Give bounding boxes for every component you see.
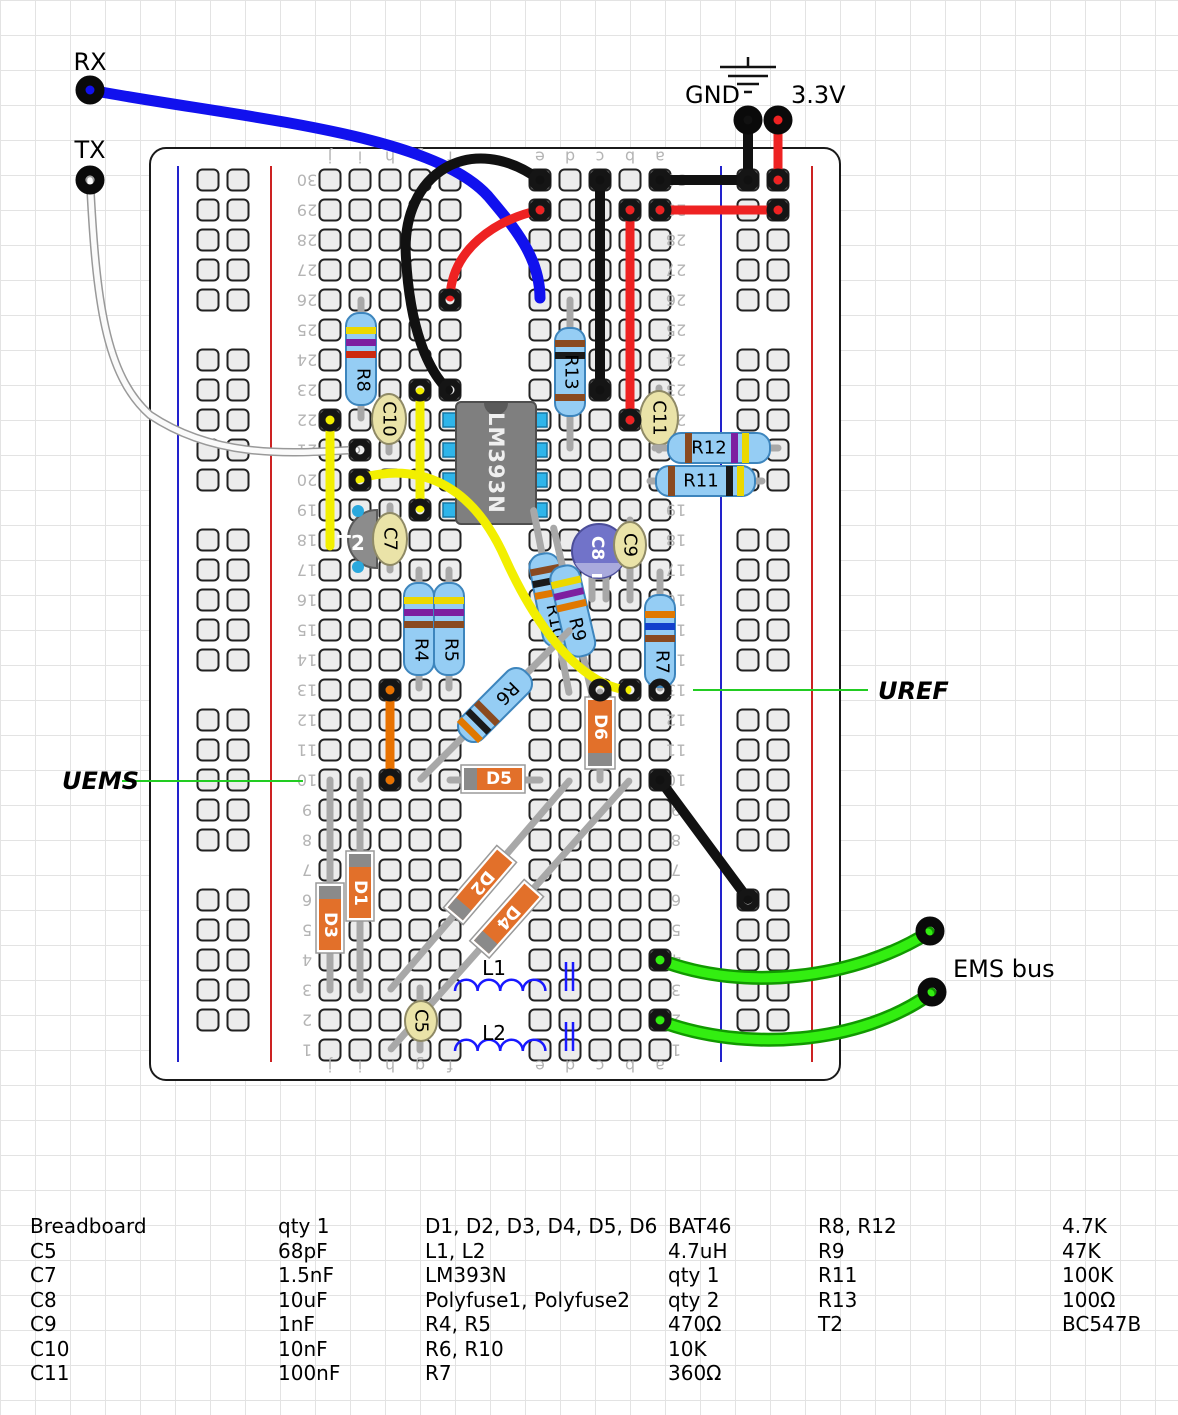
rail-hole[interactable] (228, 890, 249, 911)
breadboard-hole[interactable] (530, 320, 551, 341)
rail-hole[interactable] (228, 800, 249, 821)
breadboard-hole[interactable] (560, 710, 581, 731)
breadboard-hole[interactable] (350, 260, 371, 281)
rail-hole[interactable] (228, 380, 249, 401)
breadboard-hole[interactable] (320, 560, 341, 581)
breadboard-hole[interactable] (320, 230, 341, 251)
label-r8: R8 (353, 368, 374, 392)
column-letter: i (358, 1057, 362, 1076)
breadboard-hole[interactable] (590, 650, 611, 671)
breadboard-hole[interactable] (380, 920, 401, 941)
label-d5: D5 (486, 769, 512, 789)
rail-hole[interactable] (768, 890, 789, 911)
part-name: C11 (30, 1361, 278, 1386)
breadboard-hole[interactable] (590, 950, 611, 971)
part-row: R6, R1010K (425, 1337, 732, 1362)
breadboard-hole[interactable] (560, 500, 581, 521)
breadboard-hole[interactable] (440, 830, 461, 851)
rail-hole[interactable] (198, 890, 219, 911)
breadboard-hole[interactable] (590, 980, 611, 1001)
breadboard-hole[interactable] (440, 230, 461, 251)
resistor-r8[interactable]: R8 (346, 300, 376, 418)
breadboard-hole[interactable] (410, 800, 431, 821)
breadboard-hole[interactable] (620, 890, 641, 911)
breadboard-hole[interactable] (620, 980, 641, 1001)
row-number: 2 (302, 1011, 312, 1030)
rail-hole[interactable] (228, 980, 249, 1001)
rail-hole[interactable] (768, 470, 789, 491)
rail-hole[interactable] (228, 920, 249, 941)
part-value: qty 1 (278, 1214, 329, 1238)
rail-hole[interactable] (768, 770, 789, 791)
part-name: T2 (818, 1312, 1062, 1337)
part-row: LM393Nqty 1 (425, 1263, 732, 1288)
breadboard-hole[interactable] (650, 800, 671, 821)
breadboard-hole[interactable] (380, 260, 401, 281)
breadboard-hole[interactable] (530, 1010, 551, 1031)
rail-hole[interactable] (198, 200, 219, 221)
breadboard-hole[interactable] (440, 800, 461, 821)
rail-hole[interactable] (228, 410, 249, 431)
breadboard-hole[interactable] (560, 800, 581, 821)
rail-hole[interactable] (228, 230, 249, 251)
row-number: 26 (666, 291, 686, 310)
label-tx: TX (73, 136, 105, 164)
row-number: 24 (297, 351, 317, 370)
rail-hole[interactable] (768, 740, 789, 761)
breadboard-hole[interactable] (590, 440, 611, 461)
part-row: C1010nF (30, 1337, 340, 1362)
rail-hole[interactable] (738, 710, 759, 731)
part-value: 1nF (278, 1312, 315, 1336)
rail-hole[interactable] (738, 770, 759, 791)
rail-hole[interactable] (738, 260, 759, 281)
breadboard-hole[interactable] (380, 830, 401, 851)
breadboard-hole[interactable] (560, 200, 581, 221)
row-number: 8 (302, 831, 312, 850)
breadboard-hole[interactable] (620, 830, 641, 851)
row-number: 29 (297, 201, 317, 220)
rail-hole[interactable] (228, 170, 249, 191)
rail-hole[interactable] (738, 620, 759, 641)
rail-hole[interactable] (738, 290, 759, 311)
breadboard-hole[interactable] (380, 950, 401, 971)
rail-hole[interactable] (228, 620, 249, 641)
breadboard-hole[interactable] (410, 740, 431, 761)
t2-pin (352, 561, 364, 573)
rail-hole[interactable] (198, 560, 219, 581)
row-number: 22 (297, 411, 317, 430)
rail-hole[interactable] (198, 260, 219, 281)
column-letter: b (625, 1057, 635, 1076)
breadboard-hole[interactable] (440, 950, 461, 971)
label-c8: C8 (587, 536, 607, 560)
breadboard-hole[interactable] (350, 710, 371, 731)
rail-hole[interactable] (198, 980, 219, 1001)
rail-hole[interactable] (768, 230, 789, 251)
breadboard-hole[interactable] (650, 920, 671, 941)
rail-hole[interactable] (198, 830, 219, 851)
breadboard-hole[interactable] (530, 710, 551, 731)
rail-hole[interactable] (228, 740, 249, 761)
breadboard-hole[interactable] (560, 230, 581, 251)
breadboard-hole[interactable] (410, 860, 431, 881)
rail-hole[interactable] (768, 590, 789, 611)
rail-hole[interactable] (768, 830, 789, 851)
rail-hole[interactable] (228, 710, 249, 731)
part-row: R7360Ω (425, 1361, 732, 1386)
breadboard-hole[interactable] (320, 290, 341, 311)
column-letter: d (565, 1057, 575, 1076)
breadboard-hole[interactable] (350, 170, 371, 191)
breadboard-hole[interactable] (350, 680, 371, 701)
part-value: qty 2 (668, 1288, 719, 1312)
breadboard-hole[interactable] (410, 230, 431, 251)
breadboard-hole[interactable] (380, 320, 401, 341)
row-number: 3 (671, 981, 681, 1000)
column-letter: f (447, 1057, 453, 1076)
breadboard-hole[interactable] (440, 320, 461, 341)
rail-hole[interactable] (198, 380, 219, 401)
row-number: 9 (302, 801, 312, 820)
rail-hole[interactable] (738, 410, 759, 431)
breadboard-hole[interactable] (320, 170, 341, 191)
rail-hole[interactable] (738, 590, 759, 611)
rail-hole[interactable] (198, 800, 219, 821)
breadboard-hole[interactable] (530, 920, 551, 941)
breadboard-hole[interactable] (530, 950, 551, 971)
part-value: 10K (668, 1337, 707, 1361)
breadboard-hole[interactable] (560, 740, 581, 761)
rail-hole[interactable] (198, 920, 219, 941)
breadboard-hole[interactable] (320, 680, 341, 701)
row-number: 23 (297, 381, 317, 400)
row-number: 14 (297, 651, 317, 670)
breadboard-hole[interactable] (620, 860, 641, 881)
label-r5: R5 (441, 638, 462, 662)
rail-hole[interactable] (738, 530, 759, 551)
rail-hole[interactable] (768, 800, 789, 821)
page: 1122334455667788991010111112121313141415… (0, 0, 1178, 1415)
part-value: 470Ω (668, 1312, 721, 1336)
breadboard-hole[interactable] (560, 890, 581, 911)
label-r13: R13 (561, 354, 582, 389)
label-gnd: GND (685, 81, 740, 109)
breadboard-hole[interactable] (620, 740, 641, 761)
breadboard-hole[interactable] (380, 860, 401, 881)
rail-hole[interactable] (738, 350, 759, 371)
rail-hole[interactable] (198, 470, 219, 491)
part-name: R8, R12 (818, 1214, 1062, 1239)
breadboard-hole[interactable] (380, 800, 401, 821)
rail-hole[interactable] (228, 590, 249, 611)
label-ems-bus: EMS bus (953, 955, 1055, 983)
breadboard-hole[interactable] (530, 740, 551, 761)
rail-hole[interactable] (228, 200, 249, 221)
row-number: 5 (671, 921, 681, 940)
breadboard-hole[interactable] (590, 920, 611, 941)
breadboard-hole[interactable] (620, 170, 641, 191)
breadboard-hole[interactable] (590, 410, 611, 431)
rail-hole[interactable] (768, 650, 789, 671)
breadboard-hole[interactable] (380, 350, 401, 371)
breadboard-hole[interactable] (410, 920, 431, 941)
label-uref: UREF (878, 677, 949, 705)
breadboard-hole[interactable] (620, 1010, 641, 1031)
rail-hole[interactable] (228, 260, 249, 281)
breadboard-hole[interactable] (320, 710, 341, 731)
part-value: 10nF (278, 1337, 328, 1361)
column-letter: a (655, 148, 665, 167)
breadboard-hole[interactable] (590, 1010, 611, 1031)
breadboard-hole[interactable] (320, 260, 341, 281)
rail-hole[interactable] (738, 230, 759, 251)
row-number: 8 (671, 831, 681, 850)
breadboard-hole[interactable] (530, 830, 551, 851)
rail-hole[interactable] (228, 830, 249, 851)
rail-hole[interactable] (198, 530, 219, 551)
resistor-r12[interactable]: R12 (655, 433, 778, 463)
breadboard-hole[interactable] (380, 590, 401, 611)
breadboard-hole[interactable] (380, 290, 401, 311)
rail-hole[interactable] (768, 560, 789, 581)
rail-hole[interactable] (198, 350, 219, 371)
part-name: C7 (30, 1263, 278, 1288)
breadboard-hole[interactable] (320, 650, 341, 671)
rail-hole[interactable] (198, 230, 219, 251)
part-value: BC547B (1062, 1312, 1141, 1336)
breadboard-hole[interactable] (410, 890, 431, 911)
row-number: 16 (297, 591, 317, 610)
breadboard-hole[interactable] (320, 380, 341, 401)
breadboard-hole[interactable] (380, 620, 401, 641)
breadboard-hole[interactable] (320, 320, 341, 341)
breadboard-hole[interactable] (560, 260, 581, 281)
breadboard-hole[interactable] (380, 1010, 401, 1031)
breadboard-hole[interactable] (350, 590, 371, 611)
row-number: 28 (297, 231, 317, 250)
row-number: 6 (671, 891, 681, 910)
part-value: 4.7uH (668, 1239, 728, 1263)
parts-list-group-2: D1, D2, D3, D4, D5, D6BAT46L1, L24.7uHLM… (425, 1214, 732, 1386)
breadboard-hole[interactable] (350, 650, 371, 671)
rail-hole[interactable] (228, 650, 249, 671)
rail-hole[interactable] (768, 920, 789, 941)
part-name: R13 (818, 1288, 1062, 1313)
rail-hole[interactable] (768, 1010, 789, 1031)
breadboard-hole[interactable] (530, 350, 551, 371)
part-name: L1, L2 (425, 1239, 668, 1264)
breadboard-hole[interactable] (560, 1010, 581, 1031)
breadboard-hole[interactable] (650, 860, 671, 881)
rail-hole[interactable] (768, 260, 789, 281)
rail-hole[interactable] (738, 650, 759, 671)
rail-hole[interactable] (738, 560, 759, 581)
row-number: 28 (666, 231, 686, 250)
breadboard-hole[interactable] (410, 710, 431, 731)
rail-hole[interactable] (228, 1010, 249, 1031)
part-row: R8, R124.7K (818, 1214, 1141, 1239)
breadboard-hole[interactable] (650, 830, 671, 851)
rail-hole[interactable] (768, 620, 789, 641)
label-d1: D1 (350, 880, 370, 906)
column-letter: i (358, 148, 362, 167)
rail-hole[interactable] (198, 740, 219, 761)
breadboard-hole[interactable] (590, 470, 611, 491)
row-number: 27 (297, 261, 317, 280)
breadboard-hole[interactable] (380, 200, 401, 221)
row-number: 7 (302, 861, 312, 880)
row-number: 11 (666, 741, 686, 760)
breadboard-hole[interactable] (650, 890, 671, 911)
rail-hole[interactable] (768, 290, 789, 311)
rail-hole[interactable] (228, 560, 249, 581)
rail-hole[interactable] (198, 710, 219, 731)
rail-hole[interactable] (198, 1010, 219, 1031)
breadboard-hole[interactable] (440, 530, 461, 551)
breadboard-hole[interactable] (530, 230, 551, 251)
label-l2: L2 (482, 1021, 506, 1045)
breadboard-hole[interactable] (620, 800, 641, 821)
breadboard-hole[interactable] (620, 650, 641, 671)
breadboard-hole[interactable] (560, 860, 581, 881)
rail-hole[interactable] (228, 470, 249, 491)
rail-hole[interactable] (768, 410, 789, 431)
rail-hole[interactable] (768, 950, 789, 971)
breadboard-hole[interactable] (560, 170, 581, 191)
breadboard-hole[interactable] (590, 830, 611, 851)
column-letter: j (328, 1057, 333, 1076)
rail-hole[interactable] (198, 590, 219, 611)
breadboard-hole[interactable] (350, 740, 371, 761)
part-row: C810uF (30, 1288, 340, 1313)
rail-hole[interactable] (228, 950, 249, 971)
breadboard-hole[interactable] (530, 380, 551, 401)
row-number: 19 (666, 501, 686, 520)
diode-d6[interactable]: D6 (585, 692, 615, 780)
rail-hole[interactable] (228, 290, 249, 311)
rail-hole[interactable] (198, 290, 219, 311)
breadboard-hole[interactable] (620, 710, 641, 731)
breadboard-hole[interactable] (320, 350, 341, 371)
breadboard-hole[interactable] (620, 620, 641, 641)
part-name: C5 (30, 1239, 278, 1264)
breadboard-hole[interactable] (410, 260, 431, 281)
rail-hole[interactable] (768, 380, 789, 401)
rail-hole[interactable] (738, 800, 759, 821)
part-value: qty 1 (668, 1263, 719, 1287)
label-r4: R4 (411, 638, 432, 662)
column-letter: h (385, 1057, 395, 1076)
label-d3: D3 (320, 912, 340, 938)
rail-hole[interactable] (768, 530, 789, 551)
rail-hole[interactable] (738, 920, 759, 941)
breadboard-hole[interactable] (440, 1010, 461, 1031)
breadboard-hole[interactable] (560, 920, 581, 941)
label-c5: C5 (411, 1009, 432, 1033)
part-row: L1, L24.7uH (425, 1239, 732, 1264)
breadboard-hole[interactable] (440, 200, 461, 221)
rail-hole[interactable] (738, 1010, 759, 1031)
rail-hole[interactable] (198, 650, 219, 671)
breadboard-hole[interactable] (650, 980, 671, 1001)
breadboard-hole[interactable] (320, 740, 341, 761)
row-number: 13 (297, 681, 317, 700)
rail-hole[interactable] (768, 350, 789, 371)
column-letter: e (535, 1057, 545, 1076)
rail-hole[interactable] (768, 710, 789, 731)
part-name: LM393N (425, 1263, 668, 1288)
breadboard-hole[interactable] (410, 830, 431, 851)
column-letter: b (625, 148, 635, 167)
row-number: 18 (297, 531, 317, 550)
breadboard-hole[interactable] (590, 500, 611, 521)
breadboard-hole[interactable] (410, 530, 431, 551)
breadboard-hole[interactable] (380, 890, 401, 911)
part-row: Polyfuse1, Polyfuse2qty 2 (425, 1288, 732, 1313)
breadboard-hole[interactable] (620, 440, 641, 461)
row-number: 26 (297, 291, 317, 310)
breadboard-hole[interactable] (380, 170, 401, 191)
breadboard-hole[interactable] (380, 230, 401, 251)
breadboard-hole[interactable] (320, 200, 341, 221)
breadboard-hole[interactable] (560, 950, 581, 971)
row-number: 30 (297, 171, 317, 190)
breadboard-hole[interactable] (350, 1010, 371, 1031)
rail-hole[interactable] (738, 380, 759, 401)
label-l1: L1 (482, 956, 506, 980)
rail-hole[interactable] (228, 530, 249, 551)
breadboard-hole[interactable] (590, 860, 611, 881)
breadboard-hole[interactable] (440, 860, 461, 881)
breadboard-hole[interactable] (440, 350, 461, 371)
breadboard-hole[interactable] (620, 920, 641, 941)
breadboard-hole[interactable] (590, 890, 611, 911)
resistor-r11[interactable]: R11 (650, 466, 762, 496)
breadboard-hole[interactable] (320, 590, 341, 611)
rail-hole[interactable] (738, 830, 759, 851)
label-lm393n: LM393N (484, 412, 508, 514)
rail-hole[interactable] (198, 620, 219, 641)
rail-hole[interactable] (738, 740, 759, 761)
resistor-r5[interactable]: R5 (434, 570, 464, 688)
breadboard-hole[interactable] (560, 470, 581, 491)
part-value: 4.7K (1062, 1214, 1107, 1238)
resistor-r4[interactable]: R4 (404, 570, 434, 688)
label-c9: C9 (620, 533, 641, 557)
rail-hole[interactable] (198, 950, 219, 971)
breadboard-hole[interactable] (350, 620, 371, 641)
breadboard-hole[interactable] (380, 650, 401, 671)
ic-lm393n[interactable]: LM393N (443, 402, 547, 524)
breadboard-hole[interactable] (350, 230, 371, 251)
label-rx: RX (73, 48, 106, 76)
rail-hole[interactable] (198, 410, 219, 431)
breadboard-hole[interactable] (620, 470, 641, 491)
breadboard-hole[interactable] (320, 620, 341, 641)
row-number: 7 (671, 861, 681, 880)
row-number: 17 (297, 561, 317, 580)
breadboard-hole[interactable] (560, 980, 581, 1001)
rail-hole[interactable] (228, 350, 249, 371)
rail-hole[interactable] (198, 170, 219, 191)
breadboard-hole[interactable] (320, 1010, 341, 1031)
part-value: 47K (1062, 1239, 1101, 1263)
part-row: Breadboardqty 1 (30, 1214, 340, 1239)
breadboard-hole[interactable] (620, 950, 641, 971)
breadboard-hole[interactable] (350, 200, 371, 221)
rail-hole[interactable] (738, 950, 759, 971)
